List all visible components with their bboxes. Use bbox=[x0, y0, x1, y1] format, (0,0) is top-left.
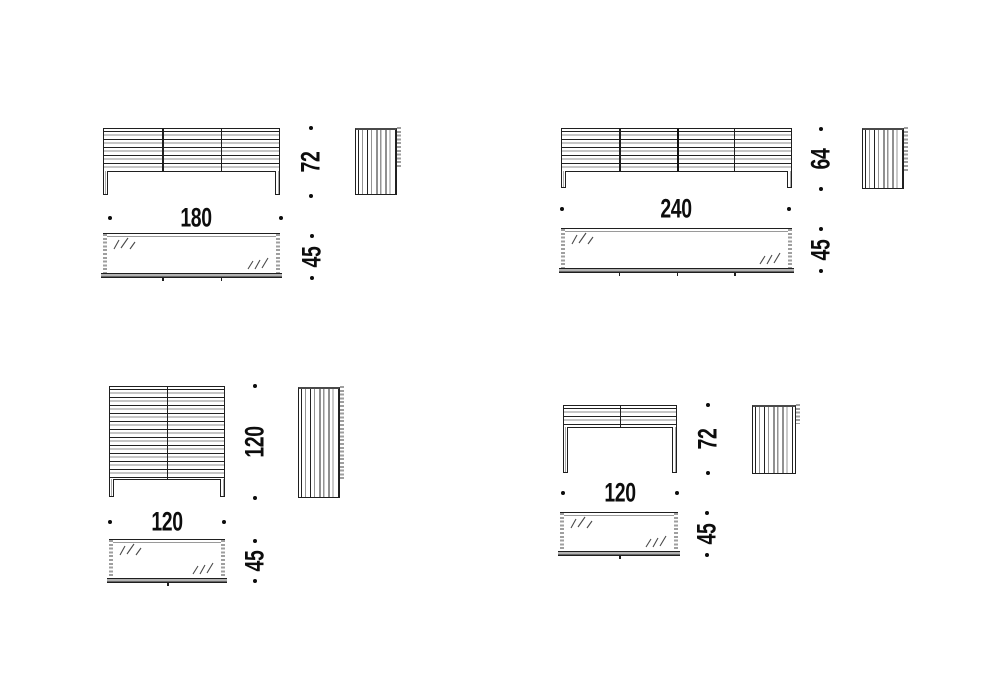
height-dimension: 72 bbox=[702, 405, 714, 473]
door-divider bbox=[620, 406, 621, 427]
dimension-dot bbox=[675, 491, 679, 495]
technical-drawing-canvas: 72 180 45 bbox=[0, 0, 1000, 700]
dimension-dot bbox=[561, 491, 565, 495]
glass-reflection-icon bbox=[568, 515, 606, 530]
dimension-dot bbox=[705, 511, 709, 515]
width-value: 120 bbox=[604, 478, 635, 509]
width-dimension: 120 bbox=[563, 481, 677, 505]
dimension-dot bbox=[706, 403, 710, 407]
dimension-dot bbox=[706, 471, 710, 475]
width-dimension-label: 120 bbox=[598, 478, 642, 509]
leg bbox=[563, 427, 568, 473]
height-dimension-label: 72 bbox=[693, 424, 724, 453]
torn-edge-texture bbox=[674, 513, 678, 552]
top-view bbox=[560, 512, 678, 556]
height-value: 72 bbox=[693, 429, 724, 450]
side-view bbox=[752, 405, 796, 474]
glass-reflection-icon bbox=[632, 534, 670, 549]
dimension-dot bbox=[705, 553, 709, 557]
front-view bbox=[563, 405, 677, 428]
top-view-back-edge bbox=[560, 512, 678, 513]
slat-texture bbox=[753, 407, 795, 473]
depth-dimension: 45 bbox=[701, 513, 713, 555]
drawing-group-console-120: 72 120 45 bbox=[0, 0, 1000, 700]
torn-edge-texture bbox=[796, 404, 801, 424]
depth-value: 45 bbox=[692, 524, 723, 545]
leg bbox=[672, 427, 677, 473]
divider-tick bbox=[619, 555, 621, 559]
torn-edge-texture bbox=[560, 513, 564, 552]
depth-dimension-label: 45 bbox=[692, 519, 723, 548]
